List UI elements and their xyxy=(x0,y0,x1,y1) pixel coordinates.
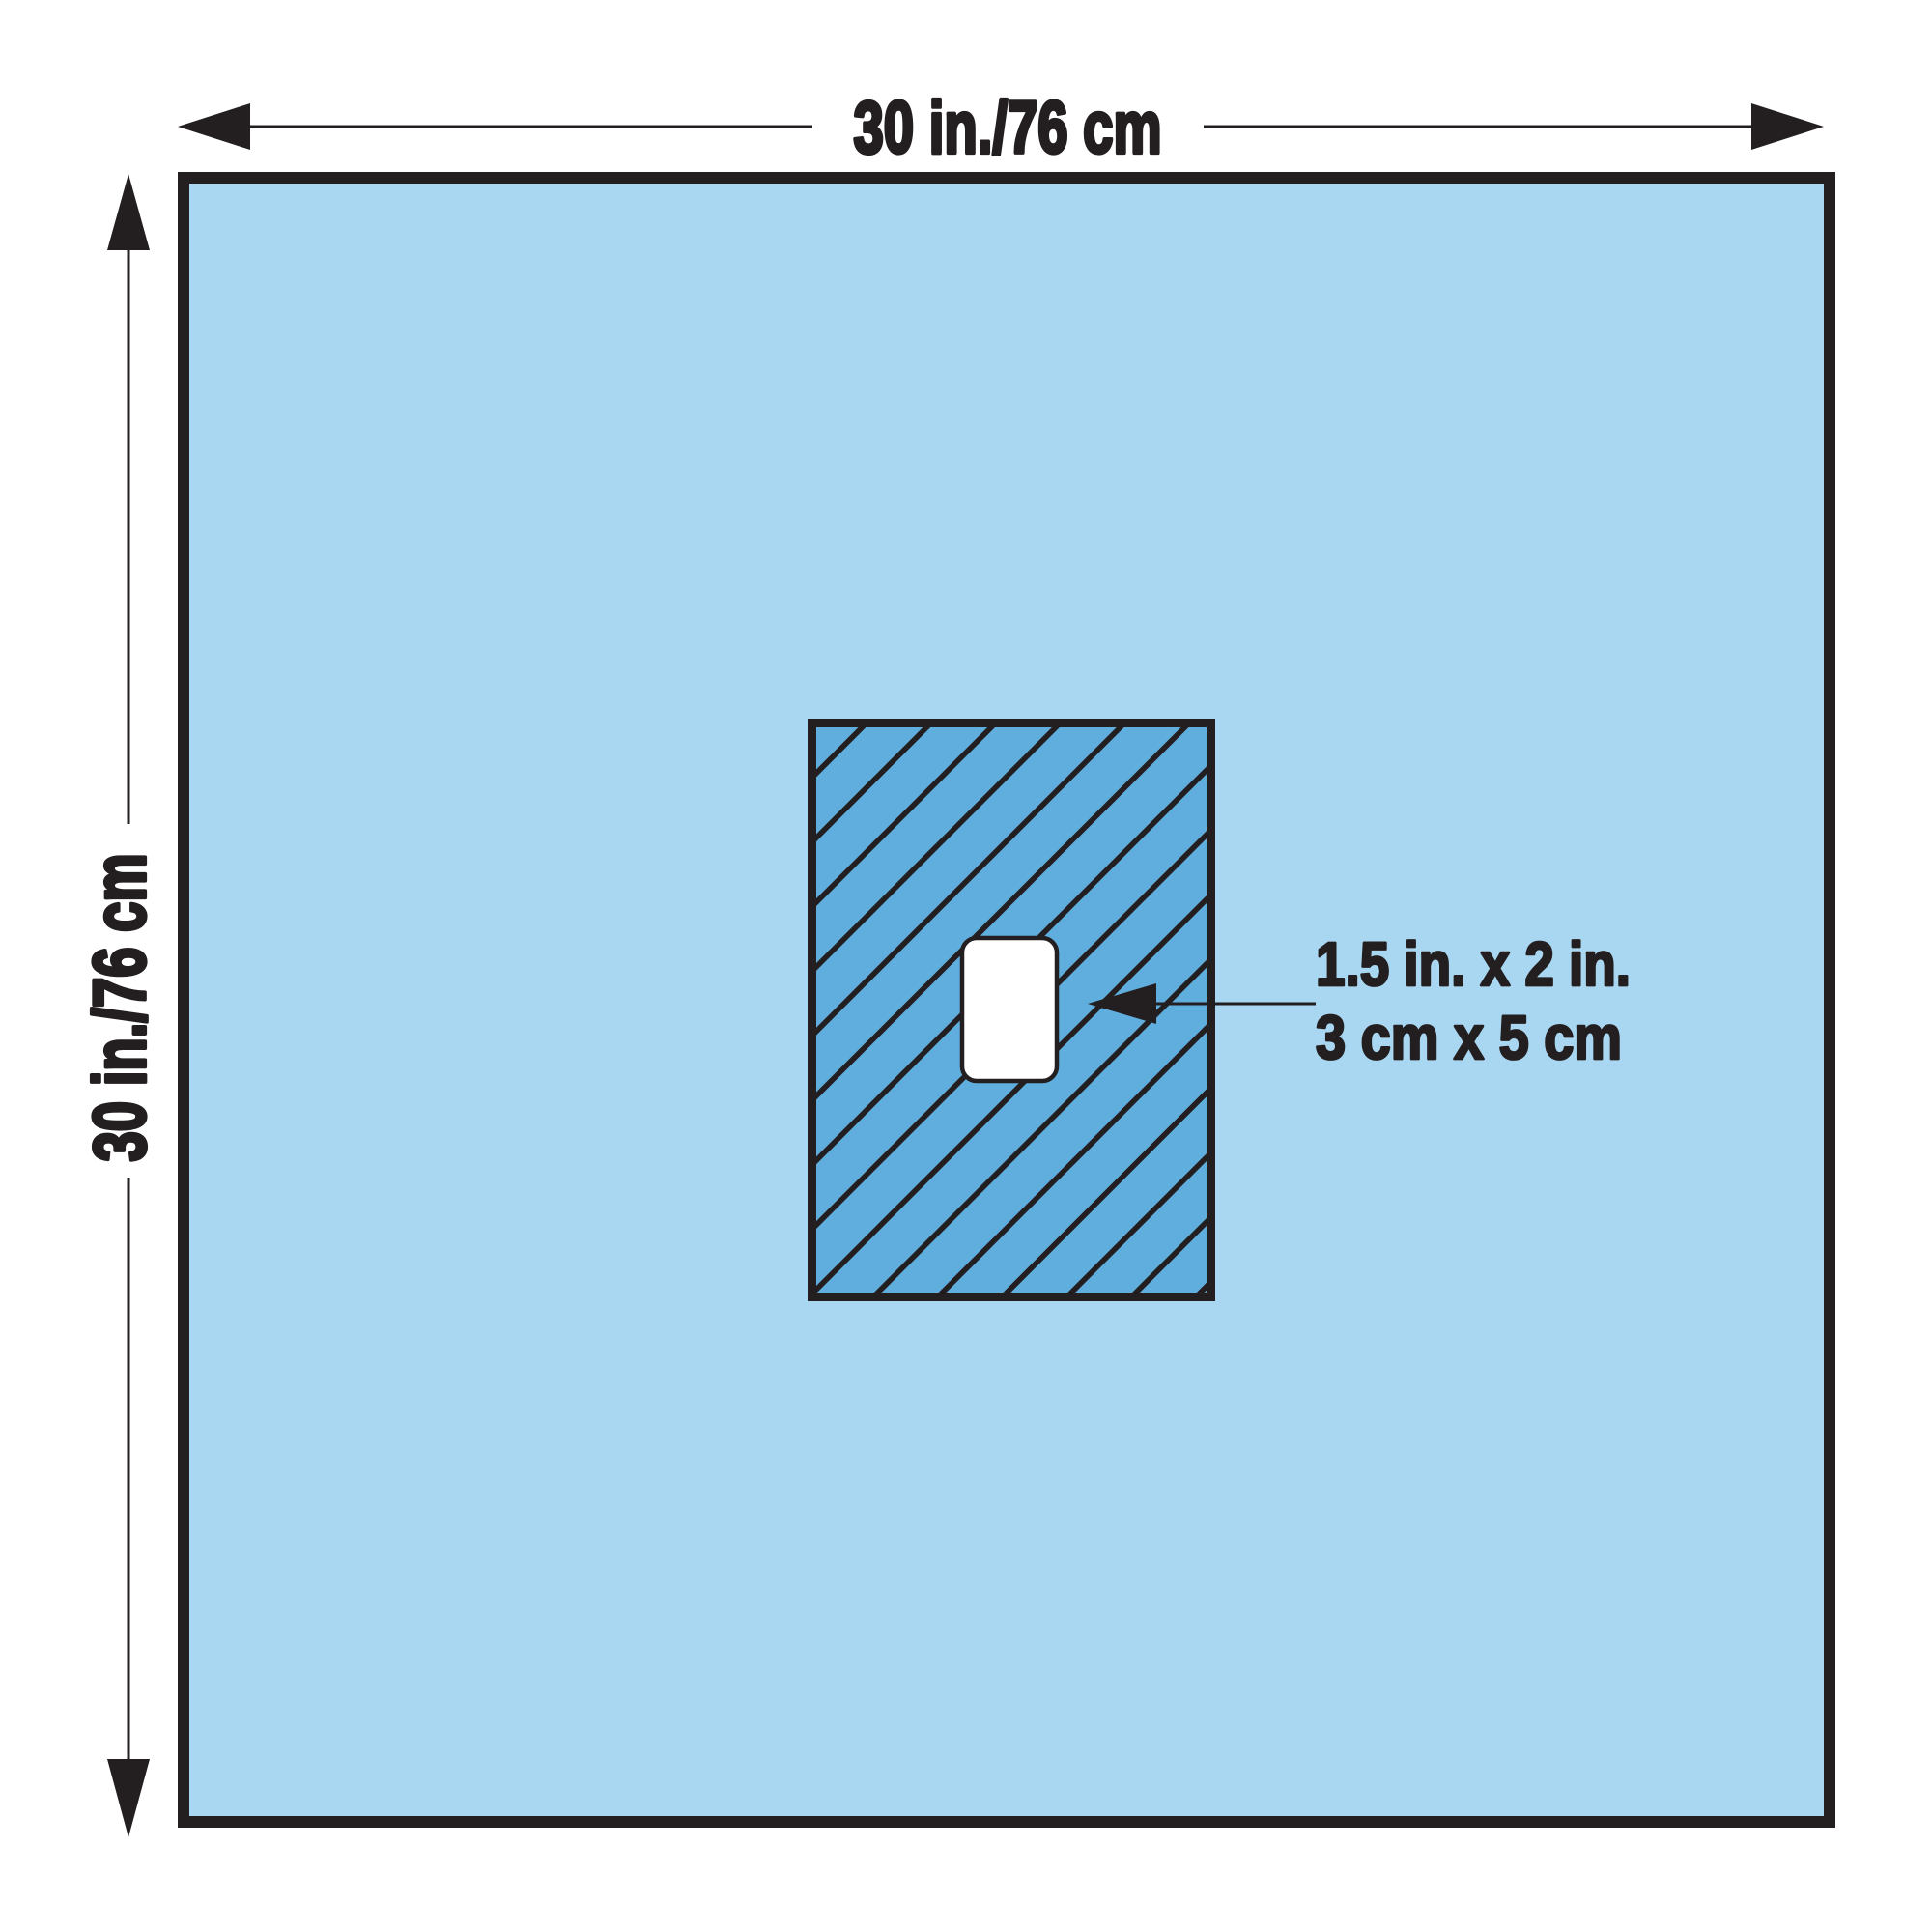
svg-text:3 cm x 5 cm: 3 cm x 5 cm xyxy=(1316,1003,1622,1072)
svg-text:1.5 in. x 2 in.: 1.5 in. x 2 in. xyxy=(1316,929,1631,999)
svg-text:30 in./76 cm: 30 in./76 cm xyxy=(854,87,1162,169)
svg-text:30 in./76 cm: 30 in./76 cm xyxy=(79,854,161,1162)
